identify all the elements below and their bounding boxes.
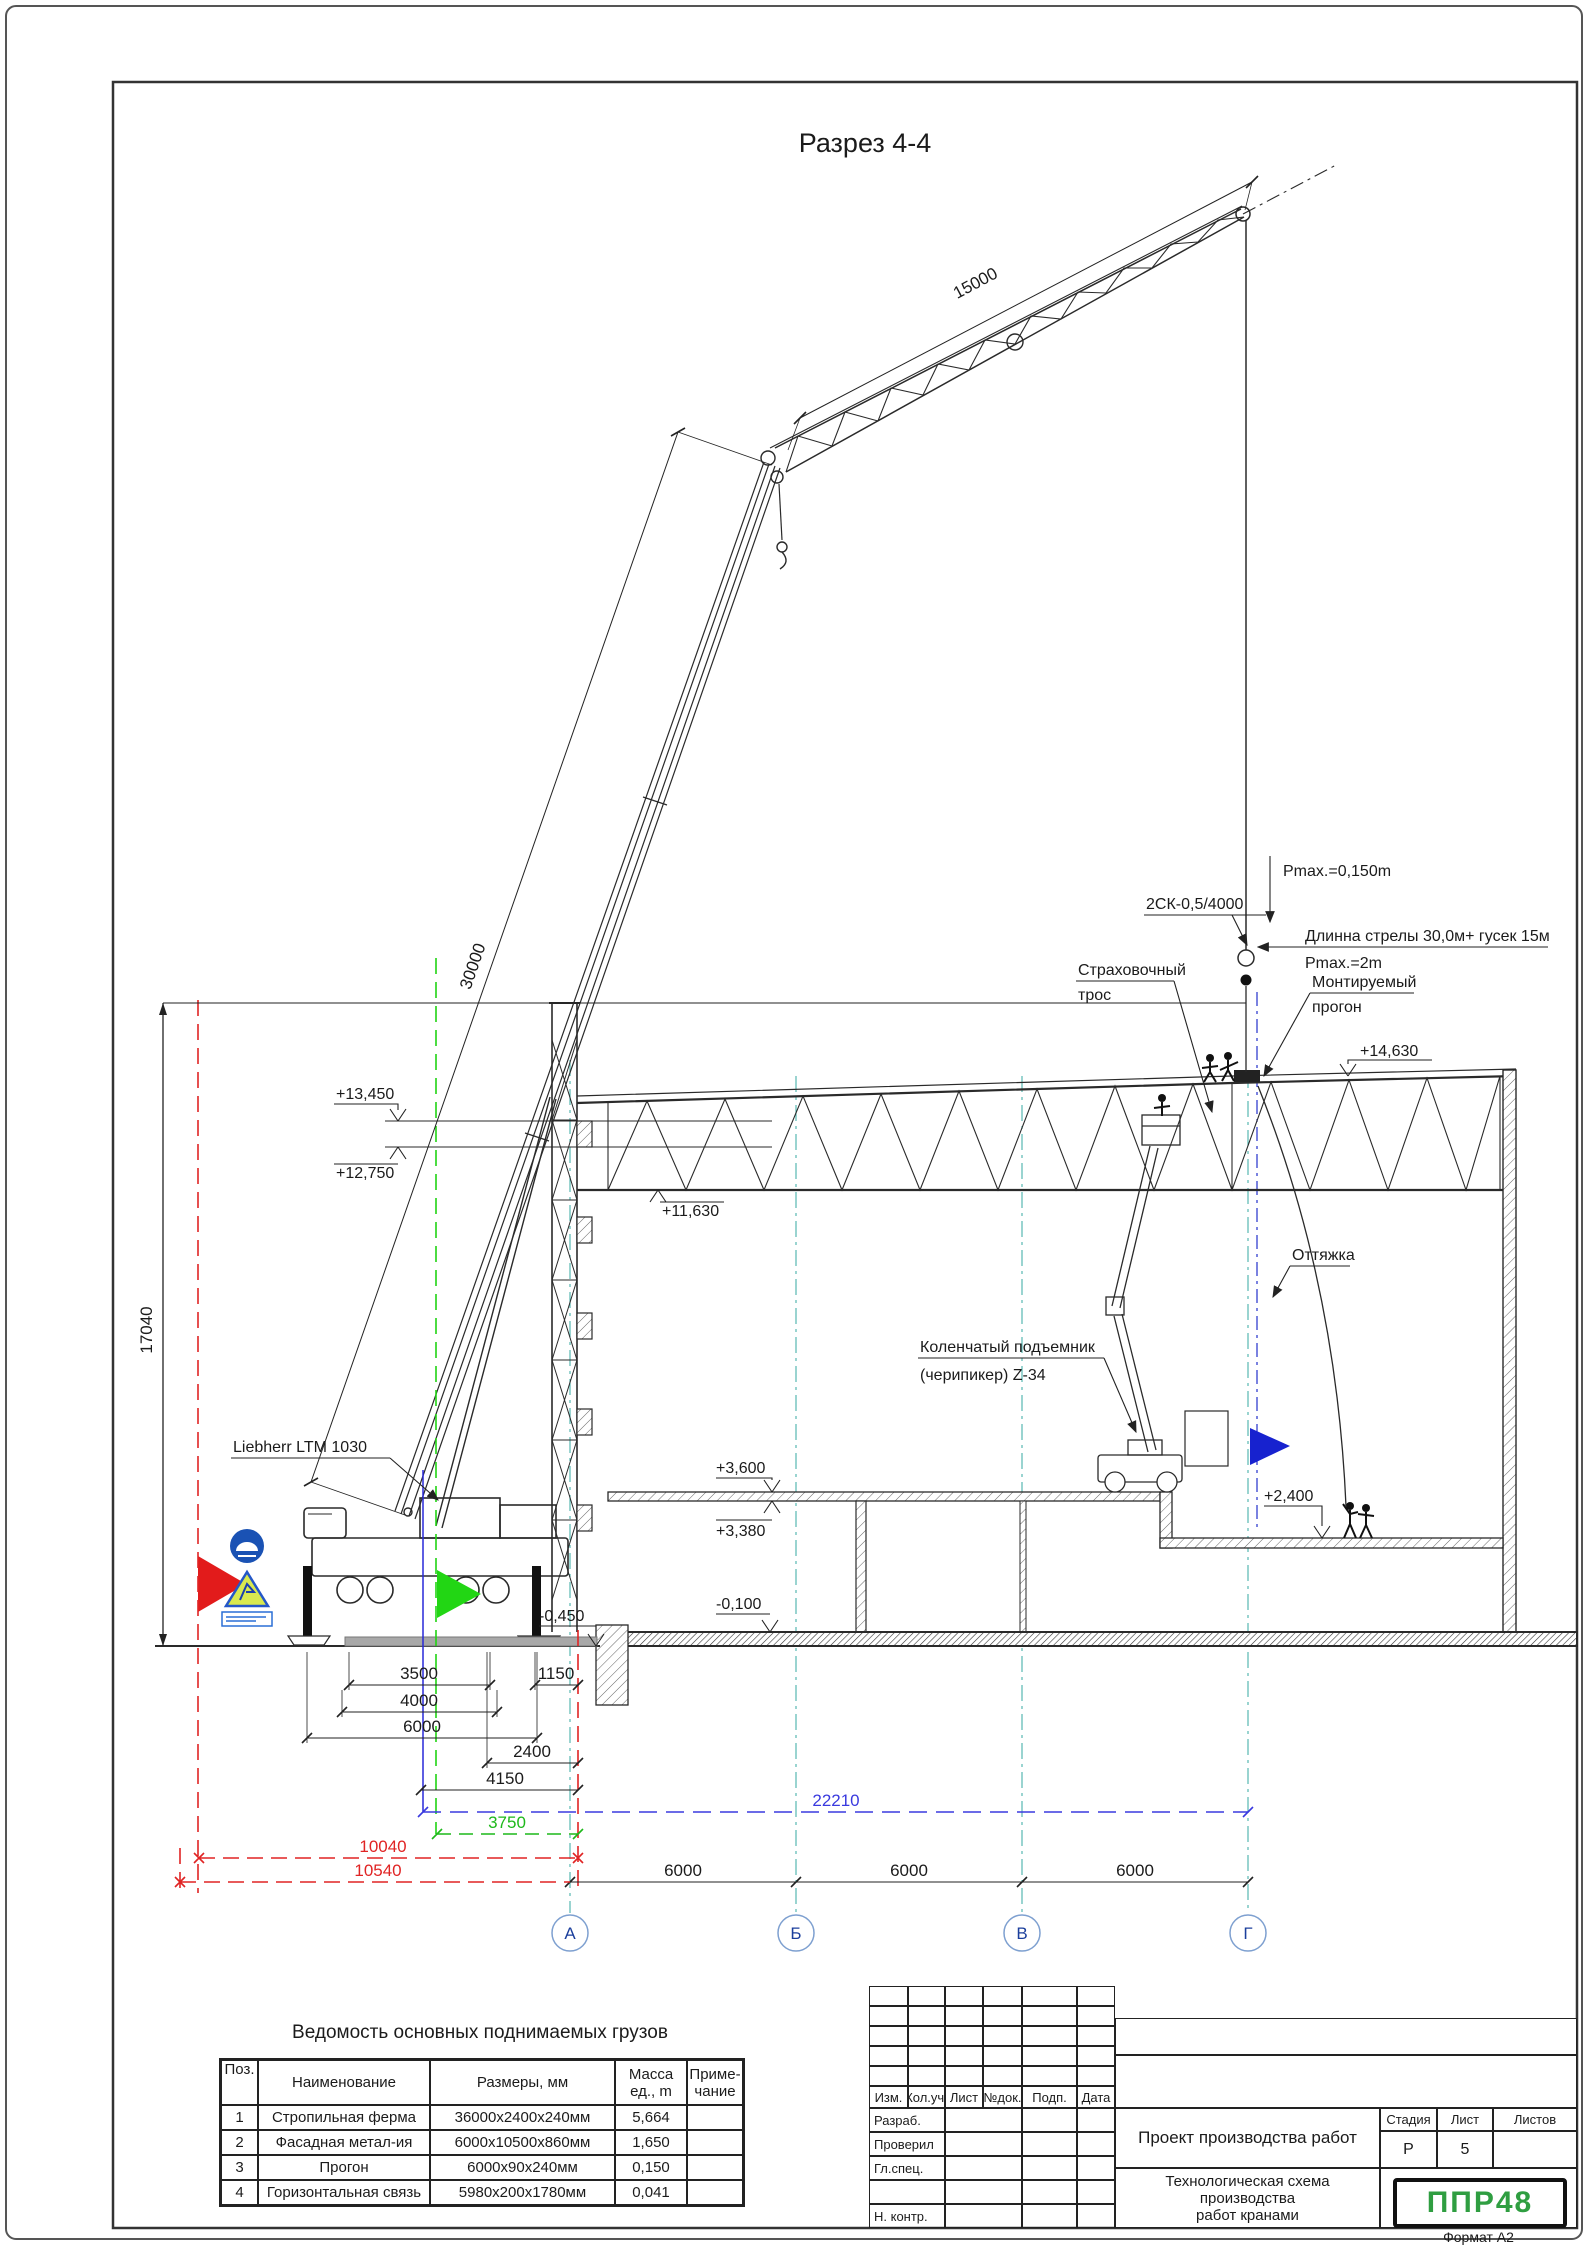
boom-load-label: Pmax.=2m	[1305, 955, 1382, 972]
axis-bubble-a: А	[564, 1924, 576, 1943]
dim-10540: 10540	[354, 1861, 401, 1880]
revision-grid-cell	[945, 2066, 983, 2086]
dim-bay3: 6000	[1116, 1861, 1154, 1880]
role-label: Гл.спец.	[869, 2156, 945, 2180]
revision-grid-cell	[908, 1986, 945, 2006]
doc-title: Технологическая схема производства работ…	[1115, 2168, 1380, 2228]
outer-border	[6, 6, 1582, 2239]
guy-label: Оттяжка	[1292, 1247, 1355, 1264]
interior-wall-2	[1020, 1501, 1026, 1632]
rev-h-podp: Подп.	[1022, 2086, 1077, 2108]
load-table-header-pos: Поз.	[221, 2060, 258, 2105]
elev-ground-floor: -0,100	[716, 1596, 761, 1613]
revision-grid-cell	[1077, 2066, 1115, 2086]
outrigger-pad-left	[288, 1636, 330, 1645]
sig-cell	[1077, 2132, 1115, 2156]
row-mass: 1,650	[615, 2130, 687, 2155]
elev-girt-bottom: +12,750	[336, 1165, 394, 1182]
foundation-pier	[596, 1625, 628, 1705]
dim-22210: 22210	[812, 1791, 859, 1810]
jib-axis-extension	[1243, 164, 1338, 214]
outrigger-leg-left	[303, 1566, 312, 1636]
ground-slab	[610, 1632, 1577, 1646]
pendant-rope	[770, 206, 1242, 448]
row-pos: 2	[221, 2130, 258, 2155]
crane-mat	[345, 1637, 597, 1646]
titleblock-empty-top	[1115, 2018, 1577, 2055]
dim-3750: 3750	[488, 1813, 526, 1832]
lift-label-2: (черипикер) Z-34	[920, 1367, 1046, 1384]
revision-grid-cell	[1022, 2066, 1077, 2086]
helmet-sign-icon	[230, 1529, 264, 1563]
revision-grid-cell	[945, 1986, 983, 2006]
dimension-lines	[159, 176, 1258, 1887]
load-table-title: Ведомость основных поднимаемых грузов	[219, 2022, 741, 2044]
sheet-label: Лист	[1437, 2108, 1493, 2131]
sig-cell	[1077, 2204, 1115, 2228]
sheets-value	[1493, 2131, 1577, 2168]
luffing-cylinder	[436, 1097, 550, 1526]
sheets-label: Листов	[1493, 2108, 1577, 2131]
sling-ring	[1241, 975, 1252, 986]
dim-10040: 10040	[359, 1837, 406, 1856]
green-flag-icon	[437, 1570, 481, 1618]
dim-jib: 15000	[950, 264, 1001, 303]
crane-superstructure	[404, 1498, 556, 1538]
revision-grid-cell	[983, 2066, 1022, 2086]
revision-grid-cell	[945, 2046, 983, 2066]
row-name: Фасадная метал-ия	[258, 2130, 430, 2155]
rev-h-data: Дата	[1077, 2086, 1115, 2108]
dim-1150: 1150	[538, 1664, 575, 1683]
sling-label: 2СК-0,5/4000	[1146, 896, 1243, 913]
sig-cell	[1077, 2156, 1115, 2180]
mounted-purlin	[1234, 1070, 1260, 1082]
dim-boom: 30000	[456, 941, 489, 992]
sig-cell	[945, 2132, 1022, 2156]
roof-truss	[577, 1069, 1516, 1190]
dim-height: 17040	[137, 1306, 156, 1353]
purlin-label-2: прогон	[1312, 999, 1362, 1016]
company-logo: ППР48	[1393, 2178, 1567, 2228]
role-label: Проверил	[869, 2132, 945, 2156]
floor-slab	[608, 1492, 1160, 1501]
revision-grid-cell	[908, 2006, 945, 2026]
revision-grid-cell	[869, 2026, 908, 2046]
logo-cell: ППР48	[1380, 2168, 1577, 2228]
role-label: Разраб.	[869, 2108, 945, 2132]
rev-h-koluch: Кол.уч.	[908, 2086, 945, 2108]
dim-4150: 4150	[486, 1769, 524, 1788]
load-table: Поз. Наименование Размеры, мм Массаед., …	[219, 2058, 745, 2207]
worker-ground-2	[1358, 1504, 1374, 1538]
row-name: Горизонтальная связь	[258, 2180, 430, 2205]
caption-plate-icon	[222, 1612, 272, 1626]
load-table-header-mass: Массаед., m	[615, 2060, 687, 2105]
drawing-sheet: Разрез 4-4 А Б В Г	[0, 0, 1588, 2245]
boom-lift-z34	[1098, 1115, 1182, 1492]
dim-3500: 3500	[400, 1664, 438, 1683]
sig-cell	[945, 2156, 1022, 2180]
signature-rows: Разраб. Проверил Гл.спец. Н. контр.	[869, 2108, 1115, 2228]
aux-hook	[777, 542, 787, 552]
revision-grid-cell	[1022, 1986, 1077, 2006]
revision-grid-cell	[983, 2006, 1022, 2026]
rev-h-dok: №док.	[983, 2086, 1022, 2108]
rev-h-list: Лист	[945, 2086, 983, 2108]
axis-bubble-b: Б	[790, 1924, 801, 1943]
revision-grid-cell	[1077, 2046, 1115, 2066]
right-wall	[1503, 1070, 1516, 1632]
sheet-value: 5	[1437, 2131, 1493, 2168]
dim-6000: 6000	[403, 1717, 441, 1736]
sig-cell	[1022, 2156, 1077, 2180]
building-section	[155, 1003, 1577, 1705]
worker-on-truss-1	[1202, 1054, 1218, 1082]
crane-model-label: Liebherr LTM 1030	[233, 1439, 367, 1456]
revision-grid-cell	[908, 2066, 945, 2086]
lift-label-1: Коленчатый подъемник	[920, 1339, 1096, 1356]
revision-grid-cell	[983, 2046, 1022, 2066]
row-note	[687, 2105, 743, 2130]
sig-cell	[1022, 2132, 1077, 2156]
axis-bubbles: А Б В Г	[552, 1915, 1266, 1951]
sig-cell	[945, 2204, 1022, 2228]
row-size: 36000х2400х240мм	[430, 2105, 615, 2130]
page-title: Разрез 4-4	[799, 128, 932, 158]
row-note	[687, 2155, 743, 2180]
revision-grid-cell	[983, 2026, 1022, 2046]
revision-grid-cell	[869, 2046, 908, 2066]
revision-grid-cell	[1022, 2006, 1077, 2026]
dim-bay2: 6000	[890, 1861, 928, 1880]
elev-roof: +14,630	[1360, 1043, 1418, 1060]
revision-grid	[869, 1986, 1115, 2086]
sig-cell	[1077, 2108, 1115, 2132]
revision-grid-cell	[1077, 2026, 1115, 2046]
row-name: Прогон	[258, 2155, 430, 2180]
titleblock-doc-code	[1115, 2055, 1577, 2108]
worker-ground-1	[1343, 1502, 1358, 1538]
role-label	[869, 2180, 945, 2204]
row-note	[687, 2130, 743, 2155]
boom-config-label: Длинна стрелы 30,0м+ гусек 15м	[1305, 928, 1550, 945]
axis-bubble-g: Г	[1243, 1924, 1252, 1943]
elev-truss-bottom: +11,630	[662, 1203, 719, 1220]
row-note	[687, 2180, 743, 2205]
workers	[1154, 1052, 1374, 1538]
crane-jib	[770, 164, 1338, 472]
safety-rope-label-2: трос	[1078, 987, 1111, 1004]
elev-slab-top: +3,600	[716, 1460, 765, 1477]
sig-cell	[945, 2180, 1022, 2204]
load-table-header-size: Размеры, мм	[430, 2060, 615, 2105]
grid-axes	[570, 1060, 1248, 1913]
row-pos: 3	[221, 2155, 258, 2180]
stage-value: Р	[1380, 2131, 1437, 2168]
row-pos: 1	[221, 2105, 258, 2130]
revision-grid-cell	[945, 2006, 983, 2026]
purlin-label-1: Монтируемый	[1312, 974, 1416, 991]
revision-grid-cell	[869, 2066, 908, 2086]
role-label: Н. контр.	[869, 2204, 945, 2228]
sig-cell	[1022, 2108, 1077, 2132]
dim-4000: 4000	[400, 1691, 438, 1710]
row-size: 6000х90х240мм	[430, 2155, 615, 2180]
load-table-header-note: Приме-чание	[687, 2060, 743, 2105]
row-mass: 5,664	[615, 2105, 687, 2130]
revision-grid-cell	[1077, 1986, 1115, 2006]
wall-opening	[1185, 1411, 1228, 1466]
revision-grid-cell	[945, 2026, 983, 2046]
axis-bubble-v: В	[1016, 1924, 1027, 1943]
sig-cell	[1022, 2204, 1077, 2228]
project-title: Проект производства работ	[1115, 2108, 1380, 2168]
row-mass: 0,150	[615, 2155, 687, 2180]
revision-grid-cell	[869, 1986, 908, 2006]
sig-cell	[945, 2108, 1022, 2132]
load-table-header-name: Наименование	[258, 2060, 430, 2105]
revision-header-row: Изм. Кол.уч. Лист №док. Подп. Дата	[869, 2086, 1115, 2108]
dim-bay1: 6000	[664, 1861, 702, 1880]
sig-cell	[1022, 2180, 1077, 2204]
revision-grid-cell	[983, 1986, 1022, 2006]
dim-2400: 2400	[513, 1742, 551, 1761]
drawing-frame	[113, 82, 1577, 2228]
blue-flag-icon	[1250, 1428, 1290, 1465]
safety-rope-label-1: Страховочный	[1078, 962, 1186, 979]
row-size: 5980х200х1780мм	[430, 2180, 615, 2205]
revision-grid-cell	[869, 2006, 908, 2026]
elev-girt-top: +13,450	[336, 1086, 394, 1103]
hook-load-label: Pmax.=0,150m	[1283, 863, 1391, 880]
stage-label: Стадия	[1380, 2108, 1437, 2131]
sig-cell	[1077, 2180, 1115, 2204]
revision-grid-cell	[1022, 2046, 1077, 2066]
lift-basket	[1142, 1115, 1180, 1145]
pit-floor	[1160, 1538, 1503, 1548]
rev-h-izm: Изм.	[869, 2086, 908, 2108]
section-drawing: Разрез 4-4 А Б В Г	[0, 0, 1588, 2245]
crane-boom	[395, 451, 787, 1528]
revision-grid-cell	[1022, 2026, 1077, 2046]
revision-grid-cell	[908, 2046, 945, 2066]
row-size: 6000х10500х860мм	[430, 2130, 615, 2155]
elev-slab-bottom: +3,380	[716, 1523, 765, 1540]
row-name: Стропильная ферма	[258, 2105, 430, 2130]
elev-pit-floor: +2,400	[1264, 1488, 1313, 1505]
row-mass: 0,041	[615, 2180, 687, 2205]
format-label: Формат А2	[1380, 2229, 1577, 2245]
worker-in-basket	[1154, 1094, 1170, 1116]
interior-wall	[856, 1501, 866, 1632]
hook-block	[1238, 950, 1254, 966]
revision-grid-cell	[1077, 2006, 1115, 2026]
elev-crane-ground: -0,450	[539, 1608, 584, 1625]
row-pos: 4	[221, 2180, 258, 2205]
revision-grid-cell	[908, 2026, 945, 2046]
